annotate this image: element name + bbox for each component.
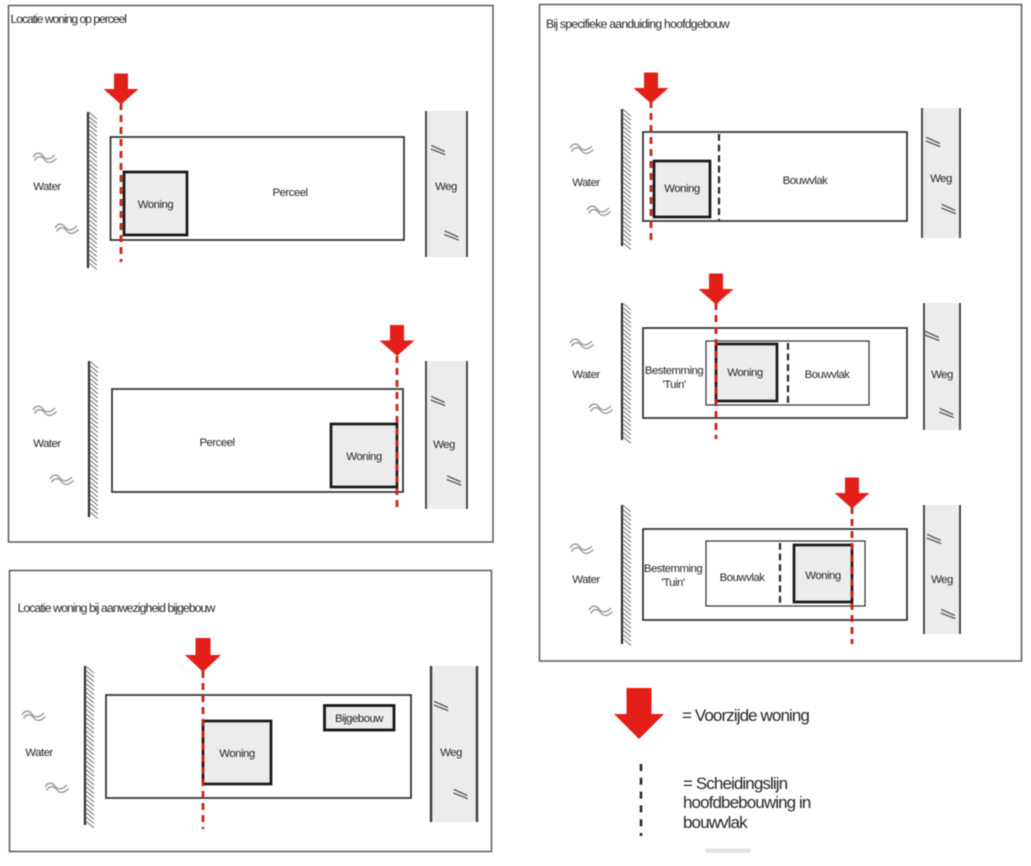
- svg-text:Water: Water: [572, 177, 600, 189]
- svg-text:Perceel: Perceel: [272, 187, 307, 199]
- svg-text:Weg: Weg: [931, 369, 953, 381]
- svg-text:Weg: Weg: [931, 574, 953, 586]
- svg-text:Woning: Woning: [664, 183, 700, 195]
- svg-text:Locatie woning op perceel: Locatie woning op perceel: [11, 12, 127, 26]
- svg-text:= Voorzijde woning: = Voorzijde woning: [682, 706, 809, 725]
- svg-text:Water: Water: [25, 747, 53, 759]
- svg-text:Weg: Weg: [433, 439, 455, 451]
- svg-text:'Tuin': 'Tuin': [662, 379, 685, 391]
- svg-text:Water: Water: [33, 438, 61, 450]
- svg-text:Bij specifieke aanduiding hoof: Bij specifieke aanduiding hoofdgebouw: [546, 17, 730, 31]
- svg-text:Bouwvlak: Bouwvlak: [783, 175, 829, 187]
- svg-text:Woning: Woning: [138, 199, 174, 211]
- svg-text:Locatie woning bij aanwezighei: Locatie woning bij aanwezigheid bijgebou…: [18, 601, 216, 615]
- svg-text:Bouwvlak: Bouwvlak: [720, 572, 766, 584]
- svg-text:Bestemming: Bestemming: [644, 563, 702, 575]
- svg-text:'Tuin': 'Tuin': [661, 577, 684, 589]
- svg-text:Weg: Weg: [930, 173, 952, 185]
- svg-text:Weg: Weg: [435, 181, 457, 193]
- svg-text:Water: Water: [33, 181, 61, 193]
- svg-text:Woning: Woning: [346, 451, 382, 463]
- svg-text:Water: Water: [572, 369, 600, 381]
- svg-text:Woning: Woning: [219, 748, 255, 760]
- svg-text:Bestemming: Bestemming: [645, 365, 703, 377]
- svg-text:Woning: Woning: [805, 570, 841, 582]
- svg-text:Bouwvlak: Bouwvlak: [805, 369, 851, 381]
- svg-text:Weg: Weg: [440, 747, 462, 759]
- svg-text:= Scheidingslijn: = Scheidingslijn: [683, 774, 788, 793]
- svg-text:hoofdbebouwing in: hoofdbebouwing in: [683, 793, 811, 812]
- svg-text:Water: Water: [572, 574, 600, 586]
- svg-text:Bijgebouw: Bijgebouw: [335, 713, 384, 725]
- svg-text:bouwvlak: bouwvlak: [683, 813, 748, 832]
- svg-text:Perceel: Perceel: [199, 437, 234, 449]
- svg-text:Woning: Woning: [727, 367, 763, 379]
